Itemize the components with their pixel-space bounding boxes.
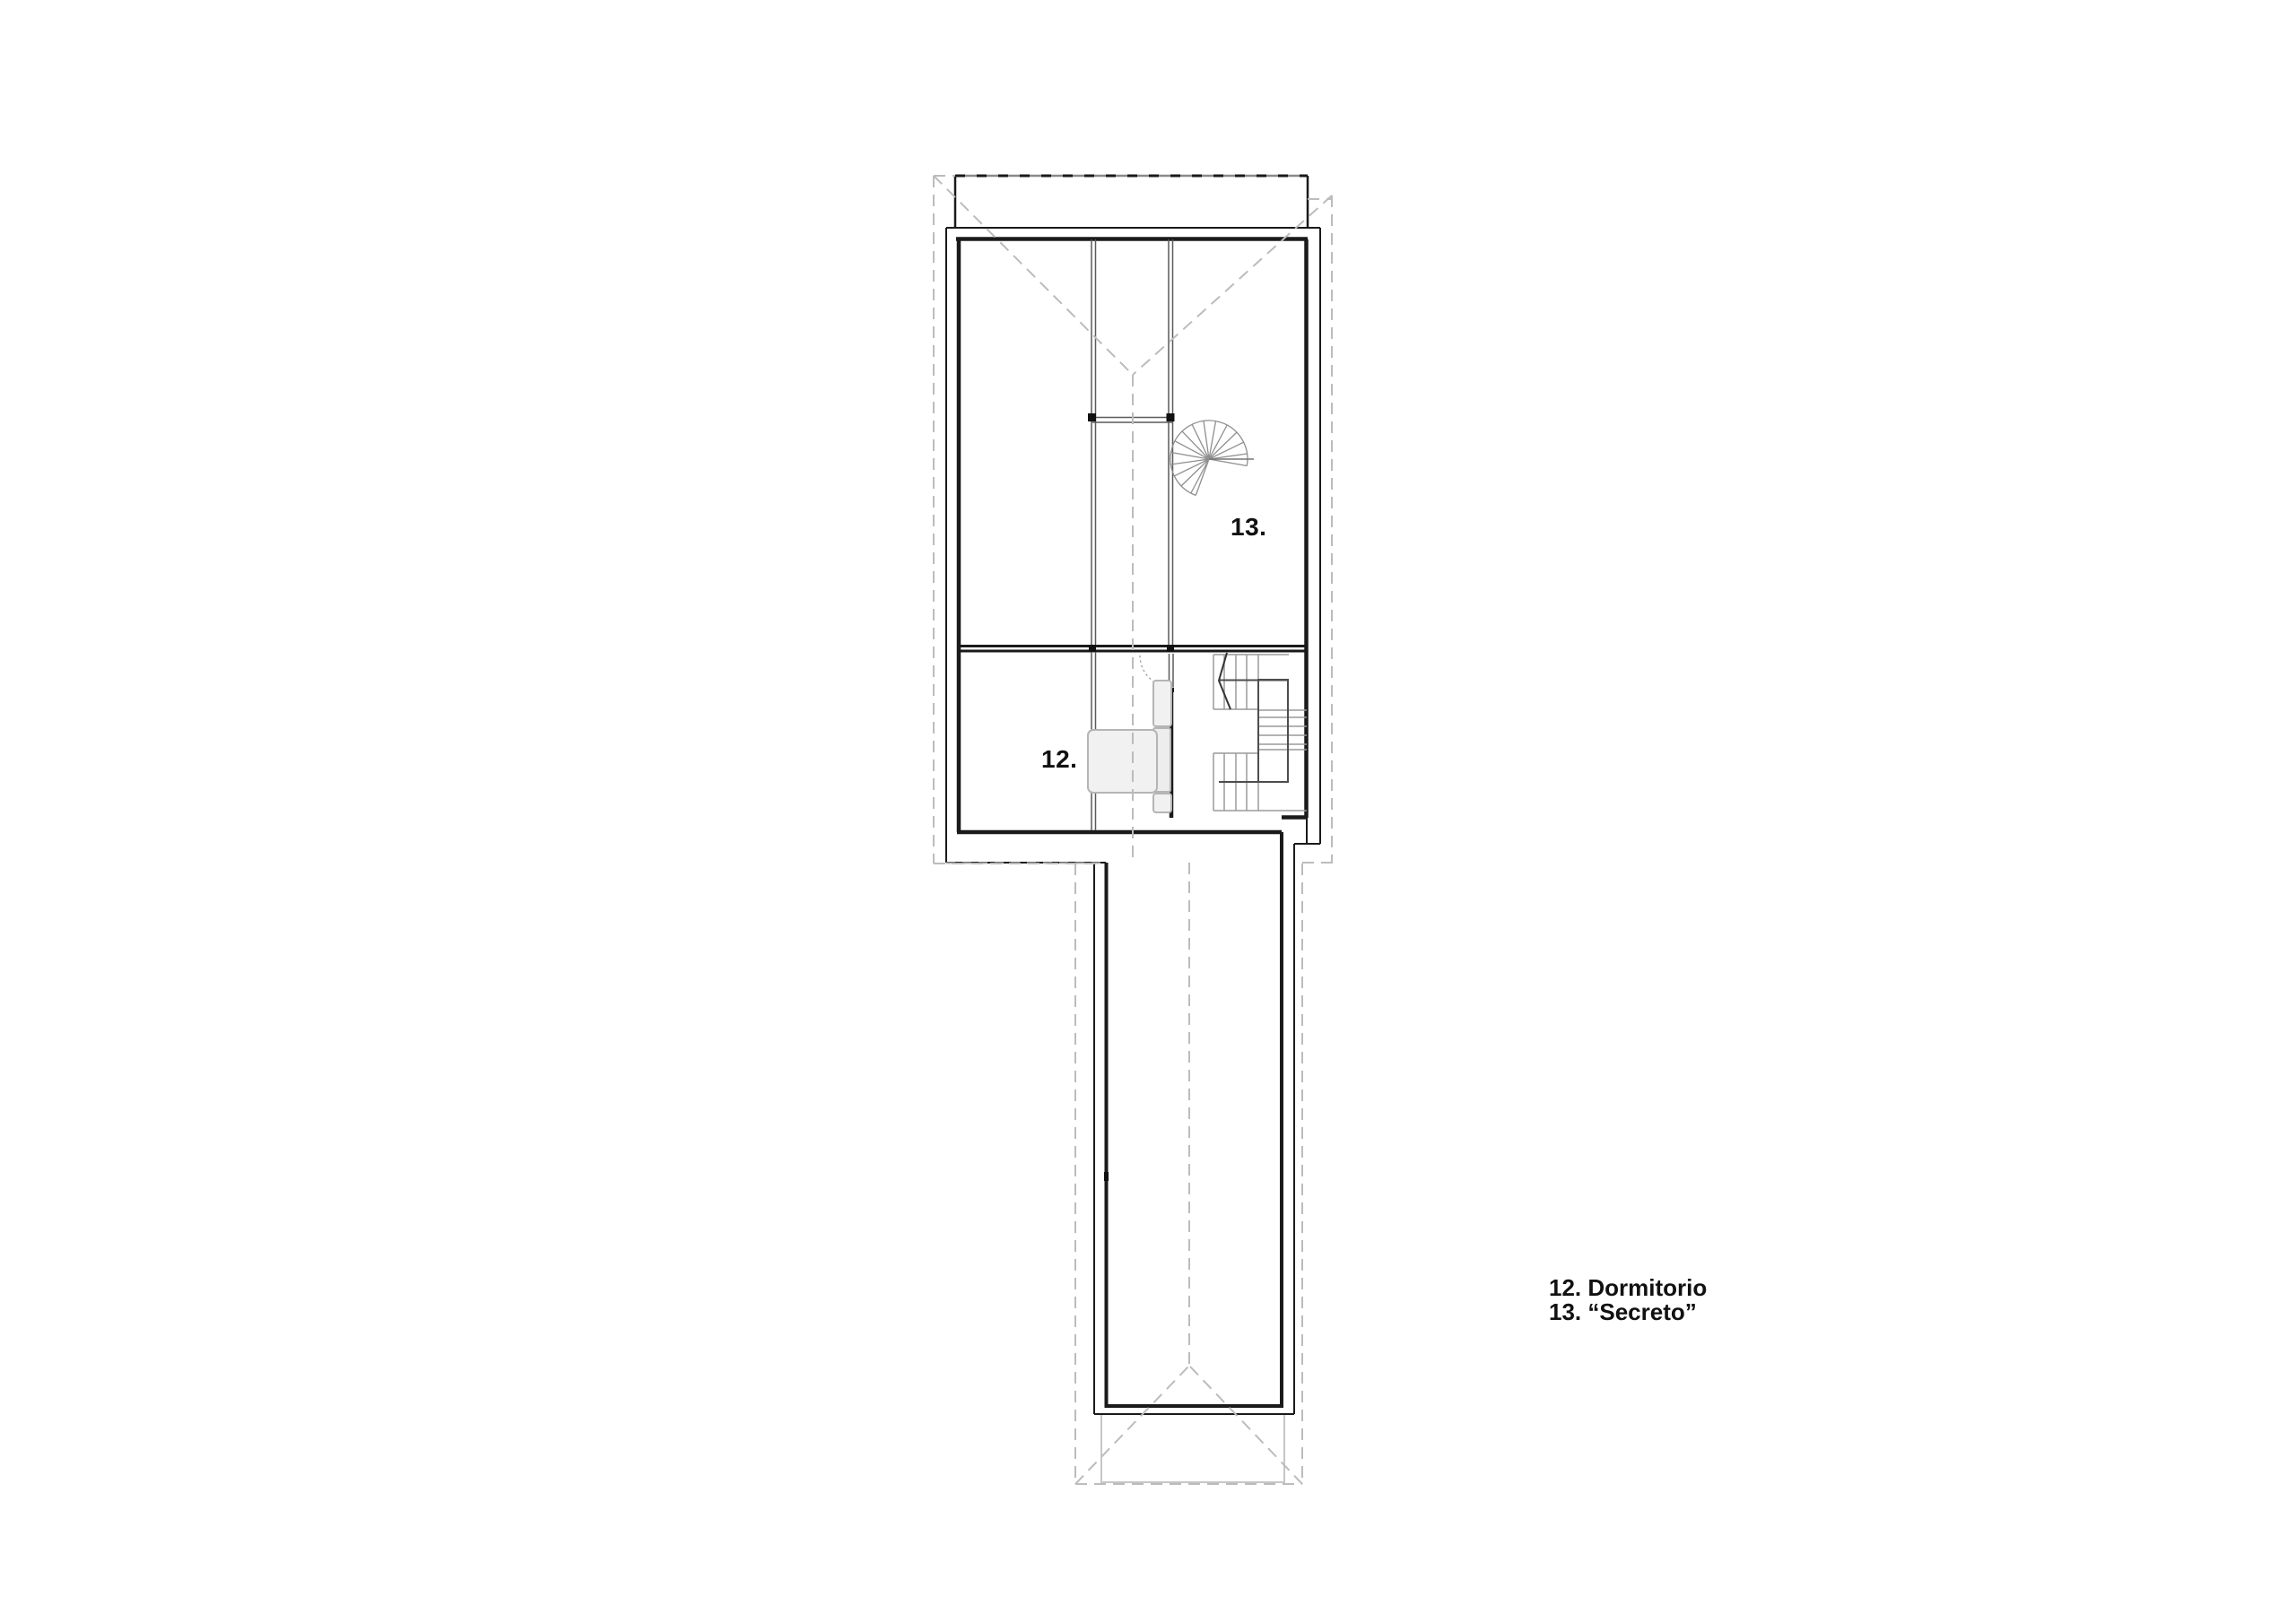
floor-plan-drawing xyxy=(0,0,2296,1623)
dormer-volume xyxy=(955,176,1308,228)
legend-line-secreto: 13. “Secreto” xyxy=(1549,1300,1707,1324)
nightstand xyxy=(1153,681,1171,726)
legend-line-dormitorio: 12. Dormitorio xyxy=(1549,1276,1707,1300)
double-bed xyxy=(1088,681,1171,812)
corridor-wing xyxy=(1094,832,1294,1414)
spiral-staircase xyxy=(1170,421,1254,495)
roof-outline-dashed xyxy=(934,176,1334,1484)
valley-line xyxy=(934,176,1133,375)
hip-line xyxy=(1189,1366,1302,1484)
nightstand xyxy=(1153,794,1171,812)
stair-well-rail xyxy=(1258,680,1288,782)
structural-posts xyxy=(1088,413,1175,652)
room-13-label: 13. xyxy=(1231,513,1266,542)
wall-opening-marker xyxy=(1104,1172,1109,1181)
switchback-staircase xyxy=(1213,653,1307,811)
room-12-label: 12. xyxy=(1041,745,1077,774)
valley-line xyxy=(1133,195,1332,375)
mattress xyxy=(1088,730,1157,793)
eaves-extension xyxy=(1101,1414,1284,1482)
floor-plan-sheet: 13. 12. 12. Dormitorio 13. “Secreto” xyxy=(0,0,2296,1623)
hip-line xyxy=(1075,1366,1189,1484)
legend: 12. Dormitorio 13. “Secreto” xyxy=(1549,1276,1707,1324)
